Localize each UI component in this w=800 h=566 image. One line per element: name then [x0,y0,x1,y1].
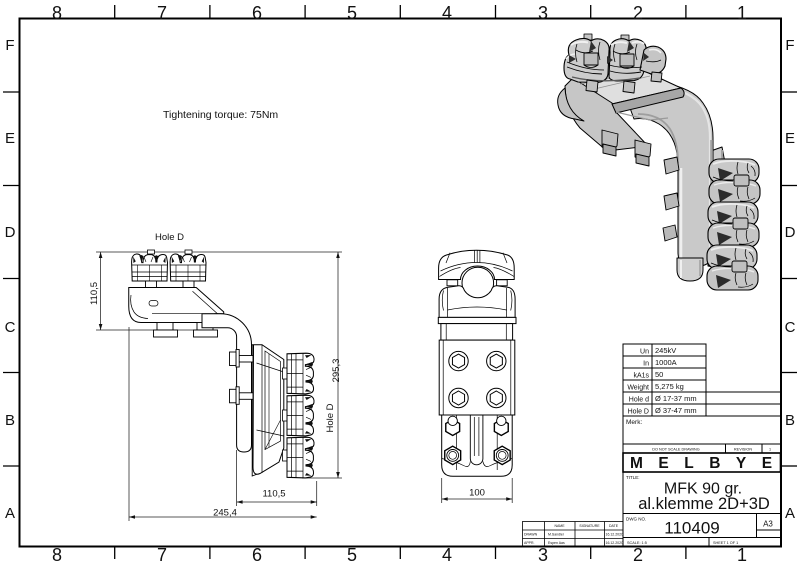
svg-text:Hole D: Hole D [325,403,336,432]
svg-text:50: 50 [655,370,663,379]
svg-text:110,5: 110,5 [89,282,100,305]
svg-text:7: 7 [157,545,167,565]
svg-text:SIGNATURE: SIGNATURE [579,524,600,528]
svg-text:4: 4 [442,3,452,23]
svg-text:A: A [5,505,15,522]
svg-text:DATE: DATE [609,524,619,528]
svg-text:E: E [5,130,15,147]
svg-text:Hole D: Hole D [628,409,649,416]
svg-text:DRAWN: DRAWN [524,533,538,537]
svg-text:5: 5 [347,3,357,23]
svg-text:3: 3 [538,545,548,565]
svg-text:2: 2 [633,3,643,23]
svg-text:C: C [785,319,796,336]
svg-text:5,275 kg: 5,275 kg [655,382,684,391]
svg-text:Merk:: Merk: [626,419,642,426]
svg-text:al.klemme 2D+3D: al.klemme 2D+3D [638,495,770,513]
svg-text:16.12.2020: 16.12.2020 [606,533,624,537]
svg-text:Ø 37-47 mm: Ø 37-47 mm [655,406,697,415]
svg-text:245kV: 245kV [655,346,676,355]
svg-text:5: 5 [347,545,357,565]
svg-text:APPR.: APPR. [524,541,535,545]
svg-text:Tightening torque: 75Nm: Tightening torque: 75Nm [163,109,278,121]
svg-text:B: B [785,412,795,429]
svg-text:SCALE: 1:5: SCALE: 1:5 [627,541,647,545]
svg-text:1: 1 [737,545,747,565]
svg-text:7: 7 [157,3,167,23]
svg-text:SHEET 1 OF 1: SHEET 1 OF 1 [713,541,738,545]
svg-text:M.Sandler: M.Sandler [548,533,565,537]
svg-text:16.12.2020: 16.12.2020 [606,541,624,545]
svg-text:TITLE:: TITLE: [626,475,640,480]
svg-text:100: 100 [469,488,485,499]
svg-text:A: A [785,505,795,522]
svg-text:E: E [785,130,795,147]
svg-text:1000A: 1000A [655,358,677,367]
svg-text:kA1s: kA1s [633,373,649,380]
svg-text:4: 4 [442,545,452,565]
svg-text:F: F [785,37,794,54]
svg-text:REVISION: REVISION [734,448,752,452]
svg-text:6: 6 [252,545,262,565]
svg-text:A3: A3 [763,520,773,529]
svg-text:8: 8 [52,3,62,23]
svg-text:110,5: 110,5 [262,489,285,500]
svg-text:F: F [5,37,14,54]
svg-text:3: 3 [538,3,548,23]
svg-text:Hole d: Hole d [629,397,649,404]
svg-text:295,3: 295,3 [331,359,342,383]
svg-text:Ø 17-37 mm: Ø 17-37 mm [655,394,697,403]
svg-text:1: 1 [737,3,747,23]
svg-text:6: 6 [252,3,262,23]
svg-text:245,4: 245,4 [213,508,237,519]
svg-text:110409: 110409 [664,519,719,538]
svg-text:MELBYE: MELBYE [630,455,788,472]
svg-text:2: 2 [633,545,643,565]
svg-text:Weight: Weight [627,385,649,392]
svg-text:8: 8 [52,545,62,565]
svg-text:1: 1 [769,448,771,452]
svg-text:B: B [5,412,15,429]
svg-text:DO NOT SCALE DRAWING: DO NOT SCALE DRAWING [652,448,700,452]
svg-text:Un: Un [640,349,649,356]
svg-text:C: C [5,319,16,336]
svg-text:D: D [5,224,16,241]
svg-text:D: D [785,224,796,241]
svg-text:Hole D: Hole D [155,232,184,243]
svg-text:Espen Aas: Espen Aas [548,541,565,545]
svg-text:DWG NO.: DWG NO. [626,517,646,522]
svg-text:NAME: NAME [554,524,565,528]
svg-text:In: In [643,361,649,368]
